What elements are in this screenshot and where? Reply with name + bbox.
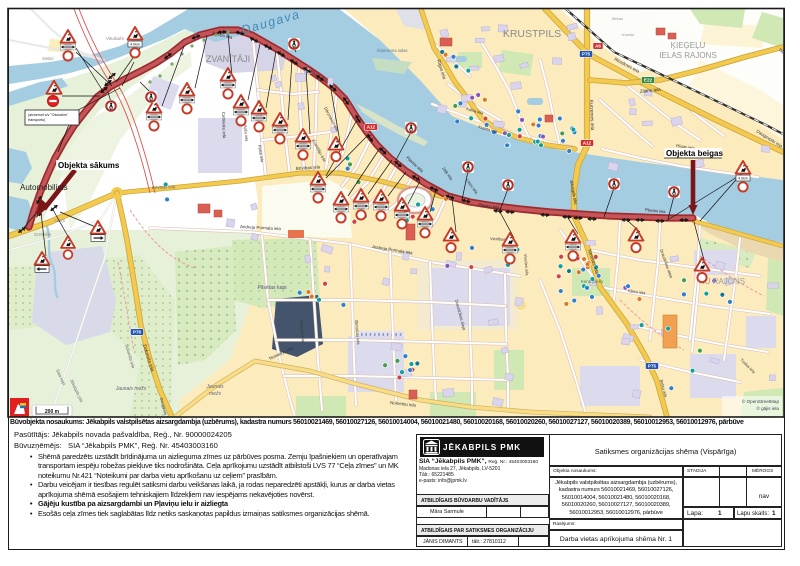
svg-text:E22: E22 [644, 78, 653, 83]
svg-text:Ādamsona salas: Ādamsona salas [377, 48, 408, 53]
svg-text:(aizņemot s/v "Ošukalns": (aizņemot s/v "Ošukalns" [28, 113, 69, 117]
svg-text:P76: P76 [133, 330, 142, 335]
svg-text:Objekta sākums: Objekta sākums [58, 161, 120, 170]
svg-text:Kurzemes iela: Kurzemes iela [588, 100, 595, 131]
svg-text:© gājis iela: © gājis iela [756, 405, 779, 411]
svg-text:A6: A6 [595, 44, 601, 49]
svg-text:Celtnieku iela: Celtnieku iela [221, 112, 227, 139]
svg-text:transportu): transportu) [28, 118, 45, 122]
svg-text:Objekta beigas: Objekta beigas [666, 149, 723, 158]
svg-text:Jaunais: Jaunais [205, 384, 224, 390]
svg-text:Brīvības iela: Brīvības iela [152, 184, 176, 190]
svg-text:A12: A12 [583, 141, 592, 146]
svg-text:KRUSTPILS: KRUSTPILS [503, 28, 561, 40]
svg-text:Bekas: Bekas [612, 16, 623, 21]
svg-text:Automobilists: Automobilists [20, 183, 68, 192]
svg-text:Jaunais mežs: Jaunais mežs [115, 386, 147, 392]
svg-text:© OpenStreetMap: © OpenStreetMap [742, 398, 780, 404]
svg-text:Kumiņi: Kumiņi [622, 32, 634, 37]
svg-text:ĶIEĢEĻU: ĶIEĢEĻU [671, 41, 706, 50]
svg-text:Grīnfelde: Grīnfelde [34, 232, 52, 237]
svg-text:mežs: mežs [209, 391, 221, 397]
svg-text:A12: A12 [367, 125, 376, 130]
svg-text:Kena parks: Kena parks [581, 279, 604, 284]
svg-text:ZVANĪTĀJI: ZVANĪTĀJI [206, 54, 250, 64]
svg-text:P75: P75 [648, 364, 657, 369]
svg-text:Sietiņi: Sietiņi [42, 56, 54, 61]
svg-text:IELAS RAJONS: IELAS RAJONS [659, 51, 716, 60]
svg-text:Vīnakalni: Vīnakalni [106, 36, 125, 41]
svg-text:P75: P75 [582, 52, 591, 57]
svg-text:Pilsētas kapi: Pilsētas kapi [257, 285, 286, 291]
